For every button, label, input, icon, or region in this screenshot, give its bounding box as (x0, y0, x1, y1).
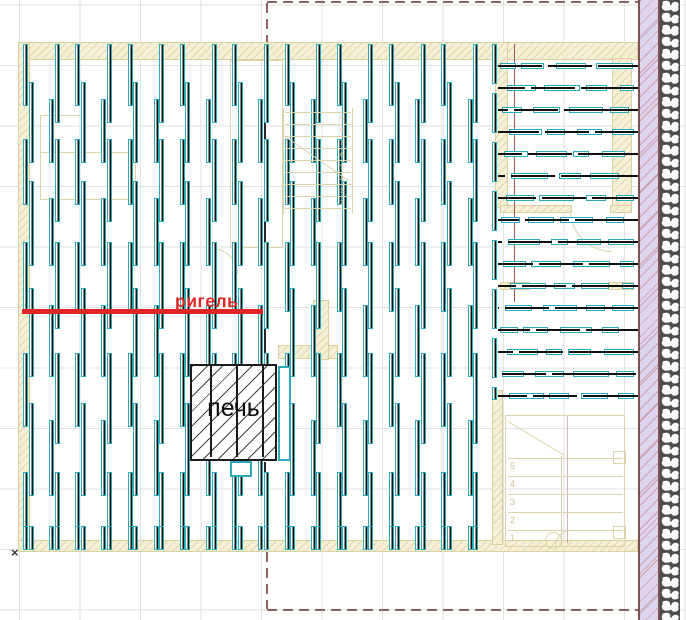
joist-centerline (498, 219, 638, 221)
main-staircase: 54321 (505, 415, 625, 547)
stair-number: 8 (340, 128, 344, 135)
stone-hatch-strip (660, 0, 680, 620)
stair-number: 7 (340, 140, 344, 147)
stair-tread (508, 530, 623, 531)
insulated-wall-strip (638, 0, 660, 620)
joist-centerline (498, 329, 638, 331)
stair-divider (561, 456, 562, 548)
joist-centerline (498, 307, 638, 309)
stair-direction-line (508, 421, 564, 455)
stair-tread (285, 208, 351, 209)
stair-tread (285, 136, 351, 137)
joist-centerline (498, 241, 638, 243)
stair-tread (285, 196, 351, 197)
stair-number: 2 (510, 516, 515, 525)
stair-tread (285, 160, 351, 161)
stair-number: 9 (340, 116, 344, 123)
origin-marker: × (11, 545, 19, 560)
joist-centerline (498, 175, 638, 177)
joist-centerline (498, 65, 638, 67)
stair-tread (285, 172, 351, 173)
stair-number: 5 (510, 462, 515, 471)
stair-tread (285, 148, 351, 149)
joist-centerline (498, 285, 638, 287)
stair-tread (508, 476, 623, 477)
joist-centerline (498, 87, 638, 89)
stone-hatch-pattern (660, 0, 680, 620)
stair-tread (508, 512, 623, 513)
stair-number: 3 (510, 498, 515, 507)
joist-centerline (498, 153, 638, 155)
stair-number: 1 (510, 534, 515, 543)
stair-number: 6 (340, 152, 344, 159)
stair-tread (285, 184, 351, 185)
joist-centerline (498, 109, 638, 111)
stair-number: 4 (510, 480, 515, 489)
stair-tread (285, 112, 351, 113)
joist-centerline (498, 131, 638, 133)
stair-number: 5 (340, 164, 344, 171)
stair-tread (508, 494, 623, 495)
joist-centerline (498, 395, 638, 397)
girder-label: ригель (175, 291, 238, 312)
stair-tread (508, 458, 623, 459)
chimney-base-outline (230, 461, 252, 477)
stove-label: печь (190, 394, 277, 423)
joist-centerline (498, 373, 638, 375)
cad-canvas[interactable]: 98765432 54321 печь ригель (0, 0, 686, 620)
stair-number: 4 (340, 176, 344, 183)
stair-number: 3 (340, 188, 344, 195)
chimney-outline (278, 366, 291, 461)
inner-staircase: 98765432 (283, 108, 353, 214)
joist-centerline (498, 197, 638, 199)
stair-tread (285, 124, 351, 125)
stair-number: 2 (340, 200, 344, 207)
joist-centerline (498, 263, 638, 265)
joist-centerline (498, 351, 638, 353)
